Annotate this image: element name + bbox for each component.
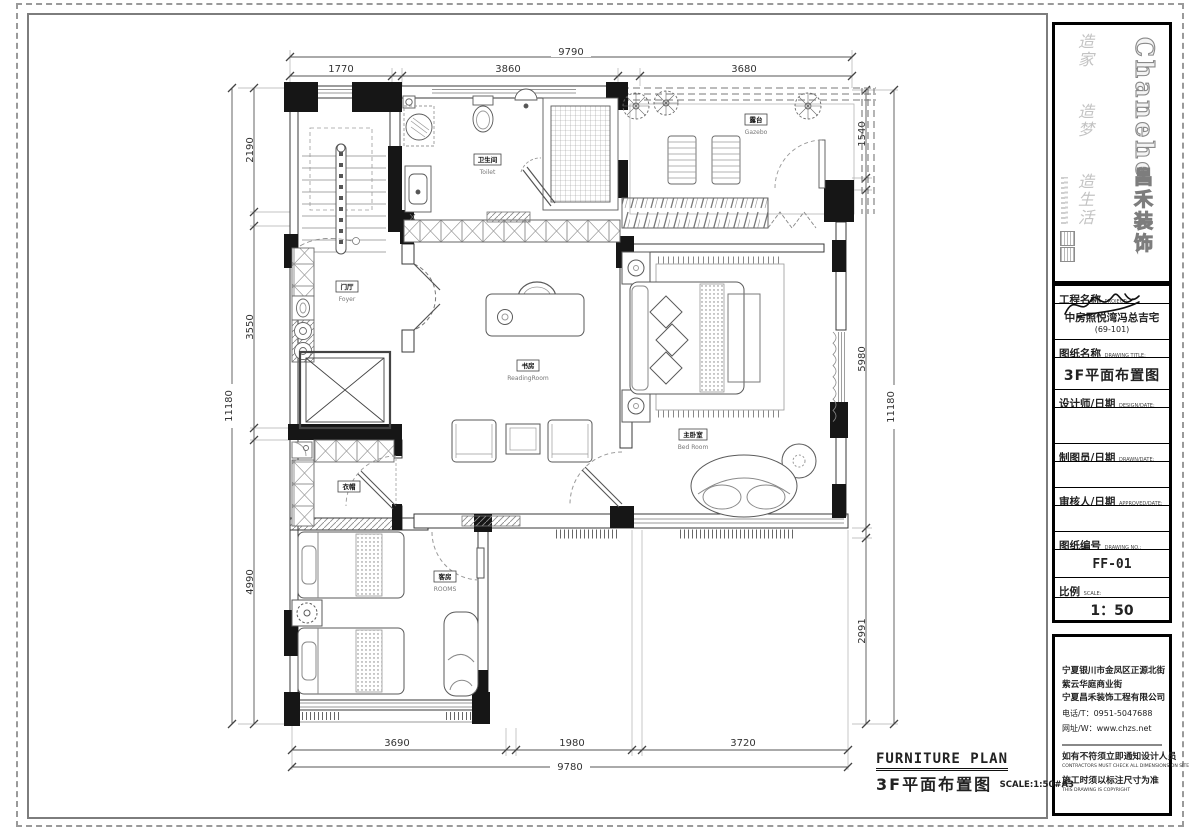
designer-label-row: 设计师/日期 DESIGN/DATE: [1055,390,1169,408]
room-label-cloak: 衣帽 [338,481,360,492]
scale-label: 比例 [1059,586,1080,598]
room-label-reading-en: ReadingRoom [507,375,549,382]
dim-bottom-seg1: 3690 [384,738,409,749]
terrace-furniture [623,91,825,188]
slogan-2: 造梦 [1072,103,1096,139]
scale-value-row: 1：50 [1055,598,1169,620]
lounge-chair [712,136,740,184]
room-label-toilet-zh: 卫生间 [478,155,498,164]
plant-icon [623,93,649,119]
dim-right-seg3: 2991 [857,618,868,643]
scale-label-en: SCALE: [1084,591,1102,597]
room-label-gazebo: 露台 Gazebo [745,114,768,136]
dim-right-overall: 11180 [886,391,897,423]
scale-label-row: 比例 SCALE: [1055,578,1169,598]
dim-left-seg2: 3550 [245,314,256,339]
drawing-value-row: 3F平面布置图 [1055,358,1169,390]
room-label-guest: 客房 ROOMS [434,571,457,593]
cloak-door-leaf [358,471,396,509]
drawing-label: 图纸名称 [1059,348,1101,358]
company-address-1: 宁夏银川市金凤区正源北街 [1062,665,1162,679]
terrace-door-leaf [819,140,825,188]
plant-icon [654,91,678,115]
foyer-double-door [414,264,440,330]
drawingno-label: 图纸编号 [1059,540,1101,550]
dim-top-seg1: 1770 [328,64,353,75]
room-label-toilet-en: Toilet [479,169,496,176]
drawing-title-value: 3F平面布置图 [1064,365,1160,385]
drawingno-label-row: 图纸编号 DRAWING NO.: [1055,532,1169,550]
single-bed [298,532,404,598]
drawing-number: FF-01 [1092,557,1131,572]
slogan-1: 造家 [1072,33,1096,69]
drafter-label: 制图员/日期 [1059,452,1115,462]
dim-top-seg2: 3860 [495,64,520,75]
room-label-bedroom: 主卧室 Bed Room [678,429,709,451]
title-block: 工程名称 PROJECT: 中房照悦湾冯总吉宅 (69-101) 图纸名称 DR… [1052,283,1172,623]
logo-box: Chanehe 昌禾装饰 造家 造梦 造生活 [1052,22,1172,284]
room-label-foyer-zh: 门厅 [341,282,355,291]
checker-label-row: 审核人/日期 APPROVED/DATE: [1055,488,1169,506]
coffee-table [506,424,540,454]
info-divider [1062,744,1162,746]
sheet-title-en: FURNITURE PLAN [876,751,1008,771]
slogan-3: 造生活 [1072,173,1096,227]
site-note-1: 如有不符须立即通知设计人员 [1062,752,1162,763]
room-label-gazebo-zh: 露台 [750,115,764,124]
dim-bottom-overall: 9780 [557,762,582,773]
company-address-2: 紫云华庭商业街 [1062,679,1162,693]
armchair [548,420,592,462]
scale-value: 1：50 [1090,600,1133,620]
dim-bottom-seg2: 1980 [559,738,584,749]
sheet-title-zh: 3F平面布置图 [876,775,992,794]
sheet-scale-note: SCALE:1:50#A3 [1000,780,1074,790]
room-label-reading: 书房 ReadingRoom [507,360,549,382]
dim-left-overall: 11180 [224,390,235,422]
room-label-reading-zh: 书房 [522,361,536,370]
desk [486,294,584,336]
terrace-door-arc [775,140,823,188]
dim-bottom-seg3: 3720 [730,738,755,749]
dim-right-seg2: 5980 [857,346,868,371]
project-subvalue: (69-101) [1095,325,1130,334]
room-label-guest-en: ROOMS [434,586,457,593]
seal-stamp [1060,247,1075,262]
dim-top-seg3: 3680 [731,64,756,75]
designer-signature-row [1055,408,1169,444]
terrace-wardrobe-strip [622,198,768,228]
designer-label: 设计师/日期 [1059,398,1115,408]
single-bed [298,628,404,694]
guest-door-leaf [477,548,484,578]
room-label-foyer: 门厅 Foyer [336,281,358,303]
staircase [300,128,386,254]
reading-room-furniture [452,282,592,462]
site-note-2: 施工时须以标注尺寸为准 [1062,776,1162,787]
chaise-lounge [444,612,478,696]
guest-nightstand [292,600,322,626]
room-label-guest-zh: 客房 [438,572,453,581]
brand-logotype: Chanehe [1130,37,1159,180]
company-phone: 电话/T：0951-5047688 [1062,706,1162,721]
checker-value-row [1055,506,1169,532]
nightstand [622,252,650,284]
room-label-bedroom-zh: 主卧室 [683,430,703,439]
bedroom-furniture [570,252,836,517]
room-label-cloak-zh: 衣帽 [343,482,357,491]
nightstand [622,390,650,422]
site-note-2-en: THIS DRAWING IS COPYRIGHT [1062,787,1162,795]
floor-plan-canvas: 9790 1770 3860 3680 3690 1980 3720 9780 … [0,0,1200,833]
drawing-label-row: 图纸名称 DRAWING TITLE: [1055,340,1169,358]
drawing-sheet: 9790 1770 3860 3680 3690 1980 3720 9780 … [0,0,1200,833]
elevator [300,352,390,428]
room-label-foyer-en: Foyer [339,296,356,303]
drawingno-value-row: FF-01 [1055,550,1169,578]
lounge-chair [668,136,696,184]
guest-room-furniture [292,532,484,696]
sheet-title-block: FURNITURE PLAN 3F平面布置图 SCALE:1:50#A3 [876,748,1074,795]
dim-top-overall: 9790 [558,47,583,58]
plant-icon [795,93,821,119]
company-name: 宁夏昌禾装饰工程有限公司 [1062,692,1162,706]
company-website: 网址/W：www.chzs.net [1062,721,1162,736]
corridor-cabinet-strip [404,220,620,242]
brand-chinese: 昌禾装饰 [1129,167,1156,255]
sheet-title-zh-row: 3F平面布置图 SCALE:1:50#A3 [876,771,1074,795]
checker-label: 审核人/日期 [1059,496,1115,506]
round-sofa [691,444,816,517]
seal-stamp [1060,231,1075,246]
room-label-toilet: 卫生间 Toilet [474,154,501,176]
double-bed [630,282,760,394]
drafter-label-row: 制图员/日期 DRAWN/DATE: [1055,444,1169,462]
bedroom-door-leaf [582,467,622,507]
room-label-bedroom-en: Bed Room [678,444,709,451]
dim-left-seg3: 4990 [245,569,256,594]
reading-window-hatch [462,516,520,526]
calligraphy-marks [1061,177,1068,225]
corridor-hatch-block [487,212,530,222]
dim-left-seg1: 2190 [245,137,256,162]
site-note-1-en: CONTRACTORS MUST CHECK ALL DIMENSIONS ON… [1062,763,1162,771]
room-label-gazebo-en: Gazebo [745,129,768,136]
drafter-value-row [1055,462,1169,488]
armchair [452,420,496,462]
toilet-fixtures [403,89,618,220]
foyer-cabinets [292,248,314,362]
